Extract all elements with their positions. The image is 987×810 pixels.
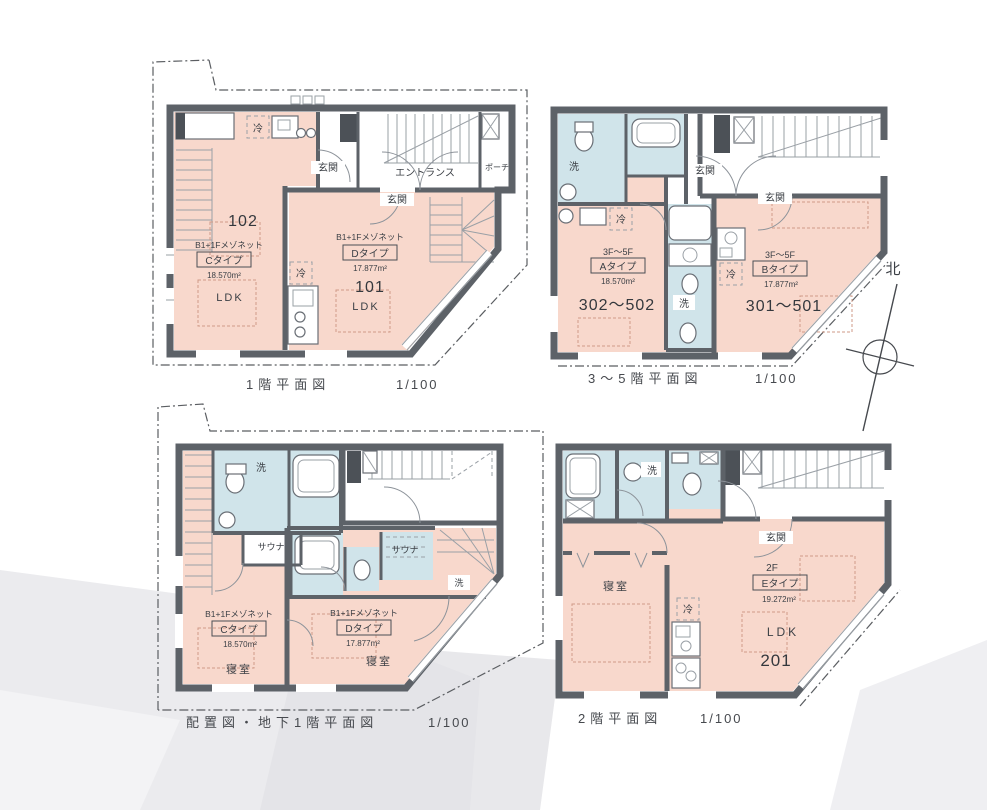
unit-c-b1-room: 寝室 [226,662,252,676]
burner-icon [297,129,306,138]
unit-b-area: 17.877m² [764,280,798,289]
unit-102-mezzonet: B1+1Fメゾネット [195,240,263,250]
fridge-label-b: 冷 [726,268,736,281]
unit-a-numbers: 302〜502 [579,297,655,314]
genkan-label-2f: 玄関 [766,531,786,544]
floorplan-drawing: 冷 玄関 エントランス ポーチ 102 B1+1Fメゾネット Cタイプ 18.5… [0,0,987,810]
deco-squares [291,96,324,104]
caption-b1: 配置図・地下1階平面図 [186,715,378,730]
unit-c-b1-mezzonet: B1+1Fメゾネット [205,609,273,619]
unit-d-b1-mezzonet: B1+1Fメゾネット [330,608,398,618]
unit-d-sauna-room [381,532,433,580]
scale-b1: 1/100 [428,715,471,730]
unit-102-type: Cタイプ [205,255,242,267]
fridge-label-101: 冷 [296,267,306,280]
porch-label: ポーチ [485,163,509,172]
unit-101-room: LDK [352,301,379,313]
unit-d-b1-room: 寝室 [366,654,392,668]
wash-label-c-b1: 洗 [256,462,266,474]
unit-101-mezzonet: B1+1Fメゾネット [336,232,404,242]
unit-a-area: 18.570m² [601,277,635,286]
plan-2f: 洗 玄関 寝室 2F Eタイプ 19.272m² 冷 LDK 201 2階平面図… [555,447,900,726]
entrance-label: エントランス [395,167,455,179]
wash-label-a: 洗 [569,161,579,173]
genkan-label-a: 玄関 [695,164,715,177]
scale-3-5f: 1/100 [755,371,798,386]
unit-b-numbers: 301〜501 [746,298,822,315]
unit-101-floor [289,192,494,350]
bathtub-icon [669,206,711,240]
fridge-label-2f: 冷 [683,603,693,616]
kitchen-sink-icon [272,116,298,138]
toilet-icon [354,560,370,580]
bedroom-label-2f: 寝室 [603,579,629,593]
wash-label-d-b1: 洗 [454,577,463,588]
sauna-label-d: サウナ [391,545,418,555]
fridge-label-a: 冷 [616,213,626,226]
unit-number-201: 201 [760,651,791,670]
floorplan-sheet: 冷 玄関 エントランス ポーチ 102 B1+1Fメゾネット Cタイプ 18.5… [0,0,987,810]
unit-c-b1-type: Cタイプ [220,624,257,636]
genkan-label-102: 玄関 [318,161,338,174]
unit-102-area: 18.570m² [207,271,241,280]
unit-c-b1-area: 18.570m² [223,640,257,649]
ldk-label-2f: LDK [767,625,799,639]
unit-number-101: 101 [355,279,385,296]
wash-label-2f: 洗 [647,465,657,477]
unit-201-bed-floor [563,521,667,691]
basin-icon [624,463,642,481]
unit-e-type: Eタイプ [762,578,799,590]
caption-1f: 1階平面図 [246,377,330,392]
unit-101-type: Dタイプ [351,248,388,260]
unit-d-b1-area: 17.877m² [346,639,380,648]
north-label: 北 [885,261,900,278]
burner-icon [307,129,316,138]
unit-a-type: Aタイプ [600,261,637,273]
unit-101-area: 17.877m² [353,264,387,273]
sauna-label-c: サウナ [257,542,284,552]
scale-2f: 1/100 [700,711,743,726]
plan-3-5f: 洗 玄関 冷 3F〜5F Aタイプ 18.570m² 302〜502 洗 冷 玄… [550,110,888,386]
toilet-icon [682,274,698,294]
basin-icon [219,512,235,528]
unit-e-floor: 2F [766,563,778,574]
caption-3-5f: 3〜5階平面図 [588,371,702,386]
plan-1f: 冷 玄関 エントランス ポーチ 102 B1+1Fメゾネット Cタイプ 18.5… [153,60,527,392]
scale-1f: 1/100 [396,377,439,392]
unit-e-area: 19.272m² [762,595,796,604]
unit-b-floors: 3F〜5F [765,250,796,260]
wash-label-b: 洗 [679,298,689,310]
genkan-label-b: 玄関 [765,191,785,204]
sink-icon [559,209,573,223]
shoe-cabinet-icon [340,114,358,142]
fridge-label-102: 冷 [253,122,263,135]
unit-d-b1-type: Dタイプ [345,623,382,635]
basin-icon [560,184,576,200]
unit-number-102: 102 [228,213,258,230]
caption-2f: 2階平面図 [578,711,662,726]
genkan-label-101: 玄関 [387,193,407,206]
toilet-icon [680,323,696,343]
unit-102-room: LDK [216,292,243,304]
toilet-icon [683,473,701,495]
unit-b-type: Bタイプ [762,264,799,276]
unit-a-floors: 3F〜5F [603,247,634,257]
